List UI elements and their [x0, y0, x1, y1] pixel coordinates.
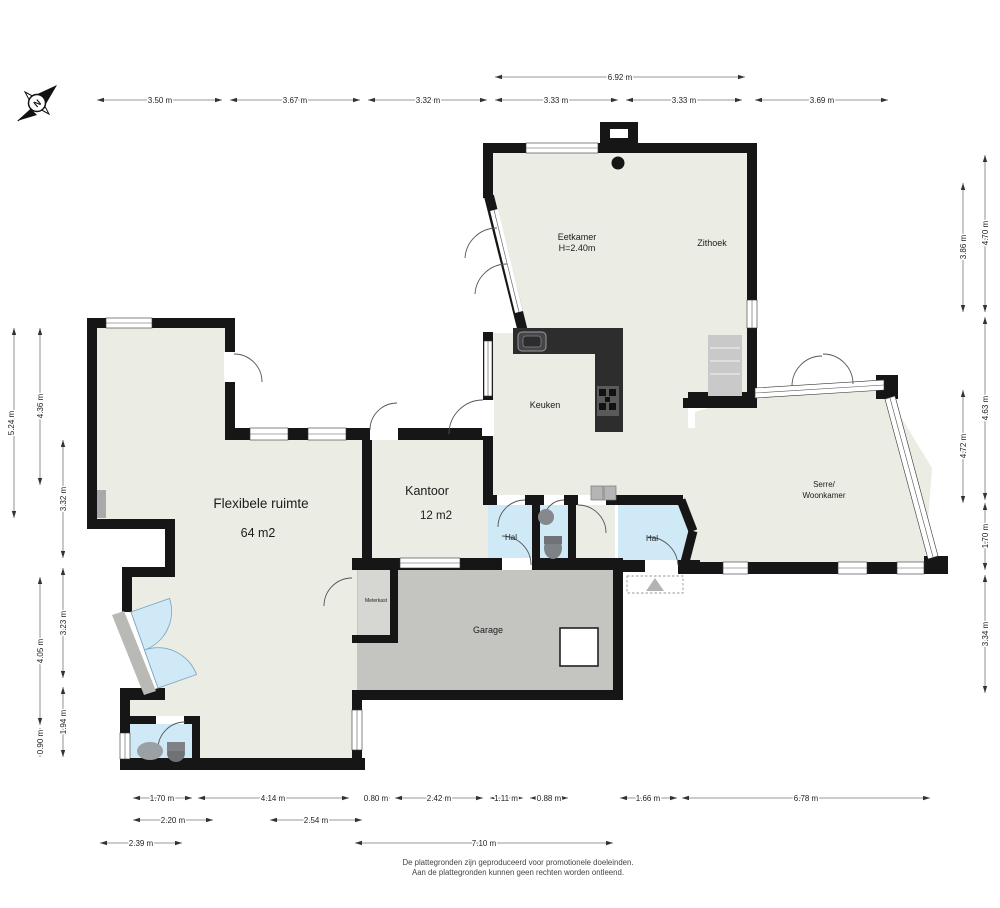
room-label-hal2: Hal [646, 534, 658, 543]
dimension-label: 4.72 m [959, 433, 968, 458]
radiator-icon [97, 490, 106, 518]
dimension-label: 0.88 m [537, 794, 562, 803]
dimension-label: 2.54 m [304, 816, 329, 825]
dimension-label: 3.33 m [672, 96, 697, 105]
room-label-eetkamer: Eetkamer [558, 232, 597, 242]
dimension-label: 1.70 m [150, 794, 175, 803]
room-label-keuken: Keuken [530, 400, 561, 410]
compass-icon: N [17, 85, 57, 121]
sink-icon [137, 742, 163, 760]
door-arc [465, 228, 497, 258]
footer-line-2: Aan de plattegronden kunnen geen rechten… [412, 868, 624, 877]
footer-disclaimer: De plattegronden zijn geproduceerd voor … [402, 858, 633, 877]
dimension-label: 1.70 m [981, 523, 990, 548]
room-floors [92, 148, 932, 764]
dimension-label: 2.20 m [161, 816, 186, 825]
room-label-meterkast: Meterkast [365, 598, 388, 604]
room-label-garage: Garage [473, 625, 503, 635]
footer-line-1: De plattegronden zijn geproduceerd voor … [402, 858, 633, 867]
room-label-eetkamer-height: H=2.40m [559, 243, 596, 253]
door-arc [792, 356, 822, 386]
door-arc [234, 354, 262, 382]
dimension-label: 3.34 m [981, 621, 990, 646]
room-label-flexibele: Flexibele ruimte [213, 496, 308, 511]
floorplan-page: Eetkamer H=2.40m Zithoek Keuken Kantoor … [0, 0, 1000, 908]
room-label-serre-2: Woonkamer [803, 491, 846, 500]
dimension-label: 6.78 m [794, 794, 819, 803]
room-label-flexibele-area: 64 m2 [241, 526, 276, 540]
chimney-block [708, 335, 742, 396]
door-arc [370, 403, 397, 430]
floor-plan-canvas: Eetkamer H=2.40m Zithoek Keuken Kantoor … [0, 0, 1000, 908]
dimension-label: 3.23 m [59, 610, 68, 635]
dimension-label: 4.36 m [36, 393, 45, 418]
kantoor-floor [367, 435, 488, 563]
dimension-label: 4.14 m [261, 794, 286, 803]
dimension-label: 5.24 m [7, 410, 16, 435]
dimension-label: 1.11 m [494, 794, 518, 803]
appliance-icon [604, 486, 616, 500]
dimension-label: 4.63 m [981, 395, 990, 420]
room-label-hal1: Hal [505, 533, 517, 542]
dimension-label: 7.10 m [472, 839, 497, 848]
room-label-kantoor-area: 12 m2 [420, 510, 452, 522]
dimension-label: 0.80 m [364, 794, 389, 803]
dimension-label: 3.32 m [59, 486, 68, 511]
dimension-label: 4.05 m [36, 638, 45, 663]
room-label-zithoek: Zithoek [697, 238, 727, 248]
appliance-icon [591, 486, 603, 500]
dimension-label: 3.33 m [544, 96, 569, 105]
dimension-label: 4.70 m [981, 220, 990, 245]
dimension-label: 2.42 m [427, 794, 452, 803]
sink-icon [538, 509, 554, 525]
room-label-serre-1: Serre/ [813, 480, 836, 489]
dimension-label: 3.67 m [283, 96, 308, 105]
garage-storage-box [560, 628, 598, 666]
dimension-label: 3.32 m [416, 96, 441, 105]
dimension-label: 6.92 m [608, 73, 633, 82]
corridor-floor [618, 428, 695, 505]
dimension-label: 3.50 m [148, 96, 173, 105]
room-label-kantoor: Kantoor [405, 484, 449, 498]
dimension-label: 0.90 m [36, 729, 45, 754]
dimension-label: 1.66 m [636, 794, 661, 803]
dimension-label: 2.39 m [129, 839, 154, 848]
dimension-label: 1.94 m [59, 709, 68, 734]
door-arc [823, 354, 853, 384]
dimension-label: 3.86 m [959, 234, 968, 259]
dimension-label: 3.69 m [810, 96, 835, 105]
